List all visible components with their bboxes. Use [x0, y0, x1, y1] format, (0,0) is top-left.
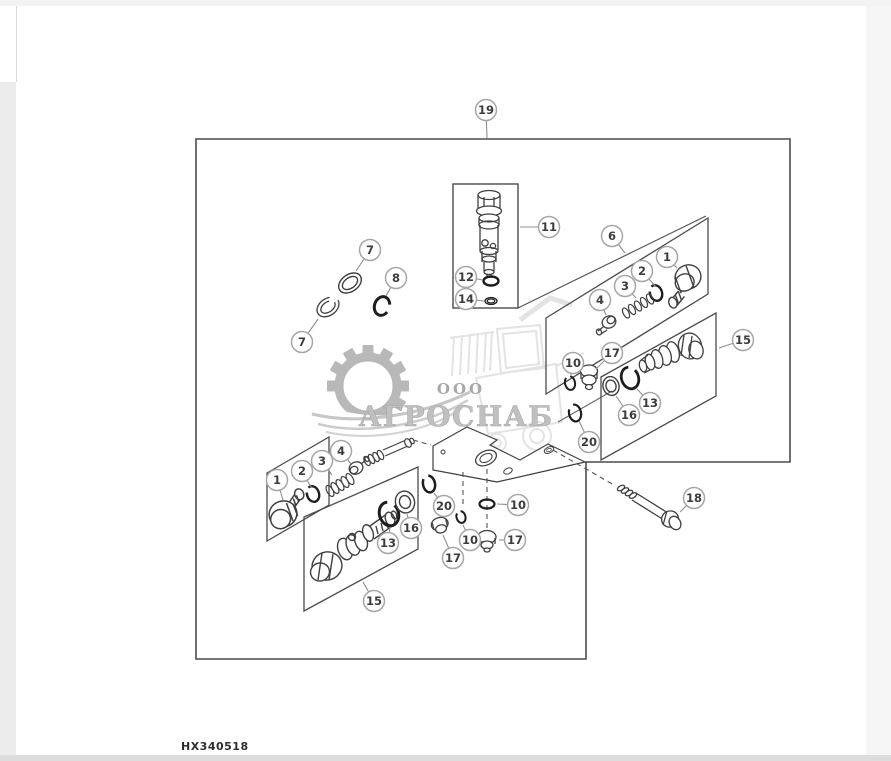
callout-number: 19 [478, 103, 494, 117]
valve-body [433, 427, 585, 482]
callout-number: 1 [663, 250, 671, 264]
left-edge-strip [0, 82, 16, 755]
panel-group-15-right [601, 313, 716, 460]
washer-7-upper [335, 269, 365, 297]
callout-number: 15 [735, 333, 751, 347]
callout-number: 11 [541, 220, 557, 234]
callout-number: 16 [403, 521, 419, 535]
bolt-18 [616, 484, 683, 532]
watermark: ООО АГРОСНАБ [312, 298, 584, 452]
back-up-ring-14 [485, 298, 497, 305]
callout-number: 3 [621, 279, 629, 293]
callout-number: 20 [581, 435, 597, 449]
washer-7-lower [313, 293, 342, 321]
connector-line [558, 391, 612, 422]
relief-cartridge-right [638, 330, 705, 373]
callout-number: 4 [596, 293, 604, 307]
callout-number: 13 [380, 536, 396, 550]
left-panel-edge [0, 6, 16, 82]
callout-number: 2 [638, 264, 646, 278]
plug-17-bottom-left [430, 516, 450, 535]
right-scroll-gutter[interactable] [866, 6, 891, 755]
callout-number: 20 [436, 499, 452, 513]
watermark-company-prefix: ООО [437, 380, 485, 398]
callout-number: 8 [392, 271, 400, 285]
plug-1-right [659, 261, 709, 309]
poppet-4-right [595, 314, 617, 336]
o-ring-10-small [455, 510, 467, 524]
o-ring-13-right [619, 365, 642, 391]
callout-number: 10 [565, 356, 581, 370]
callout-number: 12 [458, 270, 474, 284]
callout-number: 15 [366, 594, 382, 608]
o-ring-20-right [567, 403, 582, 422]
callout-number: 16 [621, 408, 637, 422]
callout-number: 10 [510, 498, 526, 512]
callout-number: 14 [458, 292, 474, 306]
o-ring-10-right [564, 375, 577, 391]
o-ring-2-left [305, 485, 321, 504]
callout-number: 17 [507, 533, 523, 547]
callout-number: 3 [318, 454, 326, 468]
callout-number: 7 [366, 243, 374, 257]
spool-assembly [362, 437, 415, 466]
callout-number: 10 [462, 533, 478, 547]
watermark-company-name: АГРОСНАБ [358, 400, 553, 433]
cartridge-valve-11 [477, 191, 502, 279]
plug-1-left [264, 488, 313, 532]
bottom-edge-strip [0, 755, 891, 761]
callout-number: 13 [642, 396, 658, 410]
part-code-label: HX340518 [181, 740, 249, 753]
callout-number: 1 [273, 473, 281, 487]
callout-number: 17 [445, 551, 461, 565]
callout-number: 2 [298, 464, 306, 478]
callout-number: 18 [686, 491, 702, 505]
top-edge-strip [0, 0, 891, 6]
callout-number: 4 [337, 444, 345, 458]
fitting-17-right [581, 365, 598, 390]
callout-number: 6 [608, 229, 616, 243]
o-ring-20-bottom [421, 474, 436, 493]
callout-number: 7 [298, 335, 306, 349]
callout-number: 17 [604, 346, 620, 360]
snap-ring-8 [372, 295, 392, 318]
parts-catalog-page: ООО АГРОСНАБ [0, 0, 891, 761]
poppet-4-left [347, 456, 370, 477]
gland-16-right [601, 375, 621, 397]
